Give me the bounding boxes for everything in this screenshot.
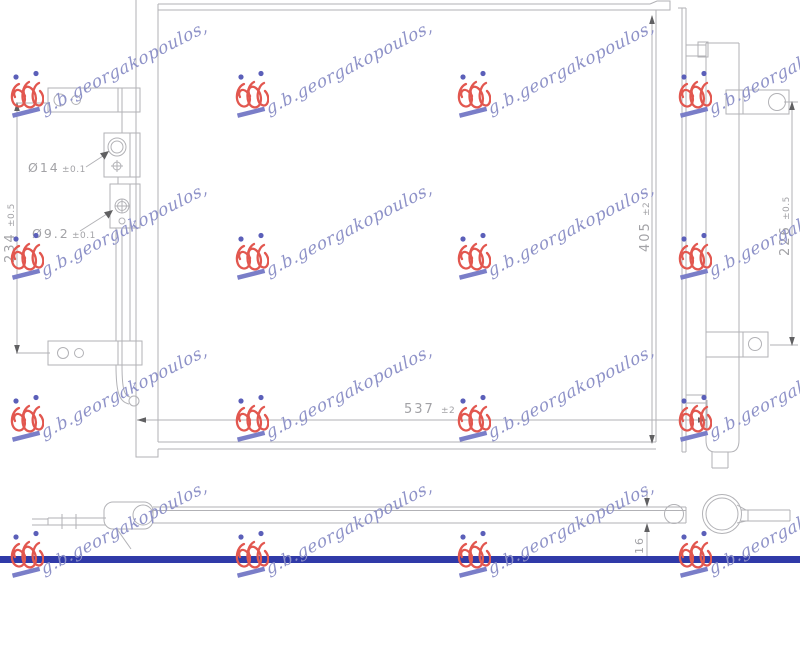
outlet-diameter-value: Ø9.2 <box>32 226 70 241</box>
top-right-bracket <box>726 90 789 114</box>
dim-width-label: 537 <box>404 402 435 417</box>
left-pipes <box>116 228 130 341</box>
bottom-right-bracket <box>706 332 768 357</box>
outlet-diameter-tolerance: ±0.1 <box>72 231 96 241</box>
dim-thickness-label: 16 <box>633 536 646 554</box>
inlet-diameter-value: Ø14 <box>28 160 60 175</box>
dim-height-tolerance: ±2 <box>642 202 652 216</box>
dim-height: 405 ±2 <box>638 15 655 444</box>
top-left-bracket <box>48 88 140 112</box>
dim-left-span-tolerance: ±0.5 <box>7 203 17 227</box>
condenser-technical-drawing: 537 ±2 405 ±2 234 ±0.5 <box>0 0 800 563</box>
condenser-side-view: 16 <box>32 489 790 556</box>
dim-drier-span: 226 ±0.5 <box>770 101 798 346</box>
dim-left-span-label: 234 <box>3 232 18 263</box>
condenser-front-view <box>48 0 789 468</box>
label-inlet-diameter: Ø14 ±0.1 <box>28 151 109 175</box>
bottom-left-bracket <box>48 341 142 365</box>
inlet-diameter-tolerance: ±0.1 <box>62 165 86 175</box>
dim-width: 537 ±2 <box>137 400 707 428</box>
dim-drier-span-label: 226 <box>778 225 793 256</box>
receiver-drier <box>686 42 739 468</box>
dim-width-tolerance: ±2 <box>441 406 455 416</box>
dim-drier-span-tolerance: ±0.5 <box>782 196 792 220</box>
dim-height-label: 405 <box>638 221 653 252</box>
inlet-fitting <box>104 133 140 177</box>
label-outlet-diameter: Ø9.2 ±0.1 <box>32 210 113 241</box>
